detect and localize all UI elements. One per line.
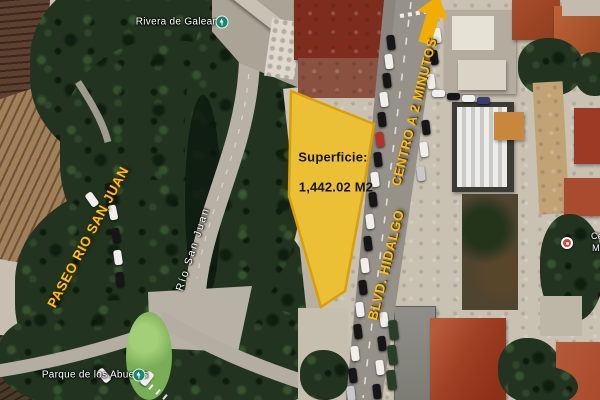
label-edge-poi-line1: Cé [591,231,600,241]
satellite-map: Superficie: 1,442.02 M2 PASEO RIO SAN JU… [0,0,600,400]
label-edge-poi-line2: M [592,243,600,253]
parcel-superficie-label: Superficie: [298,150,367,165]
poi-pin-icon[interactable] [561,237,573,249]
parcel-polygon [289,91,374,307]
park-pin-icon[interactable] [133,369,146,382]
park-pin-icon[interactable] [216,16,229,29]
label-rivera-de-galeana: Rivera de Galeana [136,17,224,28]
parcel-superficie-value: 1,442.02 M2 [299,180,373,195]
parcel-overlay [0,0,600,400]
